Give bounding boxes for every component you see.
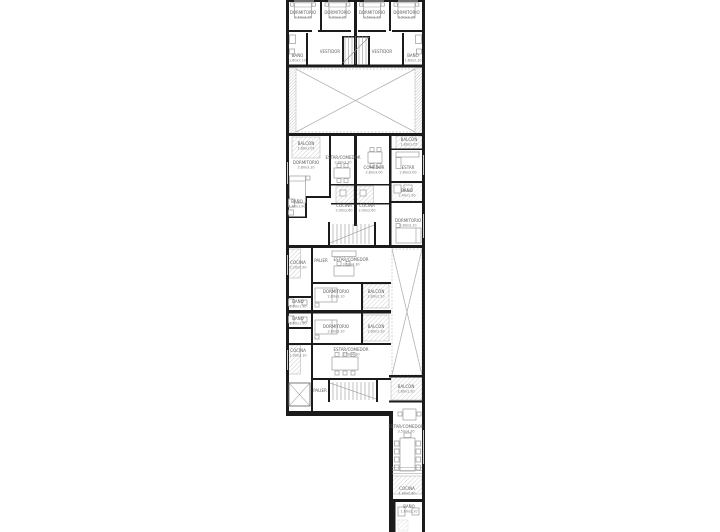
room-label-wing-estar-comedor: ESTAR/COMEDOR [389, 424, 424, 429]
room-dims-u2-bano: 1.60x1.90 [289, 305, 306, 309]
room-label-wing-bano: BAÑO [403, 504, 415, 509]
room-label-u2-balcon: BALCÓN [368, 289, 385, 294]
room-dims-u3-bano: 1.60x1.90 [289, 322, 306, 326]
stairs-unit1 [330, 224, 374, 244]
room-dims-u2-cocina: 2.20x2.90 [289, 266, 306, 270]
room-dims-u3-cocina: 1.90x3.10 [289, 354, 306, 358]
room-label-top-dorm-1: DORMITORIO [290, 10, 316, 15]
room-dims-u3-dorm: 2.80x3.10 [327, 330, 344, 334]
room-label-u3-balcon: BALCÓN [368, 324, 385, 329]
room-label-u2-dorm: DORMITORIO [323, 289, 349, 294]
room-dims-top-dorm-3: 2.50x3.25 [363, 16, 380, 20]
dining-table-icon-wing [395, 433, 421, 471]
room-label-top-vestidor-left: VESTIDOR [320, 49, 341, 54]
room-dims-top-bano-right: 1.60x2.10 [404, 59, 421, 63]
floor-plan-canvas: DORMITORIO 2.50x3.25 DORMITORIO 2.50x3.2… [0, 0, 720, 532]
room-label-wing-balcon: BALCÓN [398, 384, 415, 389]
shower-hatch-wing [398, 520, 408, 531]
room-label-u1-bano-right: BAÑO [401, 188, 413, 193]
room-dims-wing-bano: 1.60x2.10 [400, 510, 417, 514]
room-dims-wing-balcon: 2.80x1.20 [397, 390, 414, 394]
stairs-unit3 [330, 382, 376, 400]
room-label-u1-balcon-right: BALCÓN [401, 137, 418, 142]
room-label-top-bano-right: BAÑO [407, 53, 419, 58]
room-dims-wing-estar-comedor: 3.50x4.30 [397, 430, 414, 434]
room-label-u1-bano-left: BAÑO [291, 199, 303, 204]
room-dims-top-dorm-1: 2.50x3.25 [294, 16, 311, 20]
room-dims-u1-balcon-right: 1.80x1.05 [400, 143, 417, 147]
room-dims-u2-estar-comedor: 3.50x4.30 [342, 263, 359, 267]
room-label-wing-cocina: COCINA [399, 486, 415, 491]
room-label-u1-estar-comedor: ESTAR/COMEDOR [326, 155, 361, 160]
room-label-u3-dorm: DORMITORIO [323, 324, 349, 329]
room-dims-u1-cocina-left: 2.00x2.60 [335, 209, 352, 213]
room-label-top-vestidor-right: VESTIDOR [372, 49, 393, 54]
elevator-icon [289, 383, 310, 406]
room-dims-u3-balcon: 2.80x1.20 [367, 330, 384, 334]
room-label-u3-estar-comedor: ESTAR/COMEDOR [334, 347, 369, 352]
room-label-u3-palier: PALIER [313, 388, 327, 393]
toilet-icon-top-right [416, 35, 422, 54]
room-label-u2-cocina: COCINA [290, 260, 306, 265]
room-label-u3-bano: BAÑO [292, 316, 304, 321]
room-label-u1-balcon-left: BALCÓN [298, 141, 315, 146]
room-label-top-dorm-4: DORMITORIO [393, 10, 419, 15]
floor-plan-svg: DORMITORIO 2.50x3.25 DORMITORIO 2.50x3.2… [0, 0, 720, 532]
room-label-u1-estar: ESTAR [402, 165, 415, 170]
table-icon-u1-estar [334, 164, 350, 183]
sofa-icon-u2 [332, 251, 356, 257]
room-label-u1-dorm-left: DORMITORIO [293, 160, 319, 165]
room-label-top-dorm-3: DORMITORIO [359, 10, 385, 15]
void-edge-hatch-left [289, 68, 296, 133]
room-dims-top-bano-left: 1.60x2.10 [289, 59, 306, 63]
void-edge-hatch-right [415, 68, 422, 133]
room-dims-u3-estar-comedor: 3.50x4.30 [342, 353, 359, 357]
room-dims-u2-balcon: 2.80x1.20 [367, 295, 384, 299]
room-dims-u1-bano-left: 1.60x1.90 [288, 205, 305, 209]
room-dims-wing-cocina: 1.90x2.80 [398, 492, 415, 496]
room-dims-u1-balcon-left: 1.80x1.05 [297, 147, 314, 151]
room-label-u1-dorm-right: DORMITORIO [395, 218, 421, 223]
room-label-u1-cocina-right: COCINA [359, 203, 375, 208]
room-dims-top-dorm-2: 2.50x3.25 [329, 16, 346, 20]
room-label-top-bano-left: BAÑO [292, 53, 304, 58]
room-label-u1-comedor: COMEDOR [364, 165, 385, 170]
room-label-top-dorm-2: DORMITORIO [324, 10, 350, 15]
table-icon-wing-small [398, 409, 421, 420]
room-label-u2-estar-comedor: ESTAR/COMEDOR [334, 257, 369, 262]
room-label-u2-bano: BAÑO [292, 299, 304, 304]
room-dims-u1-cocina-right: 2.00x2.60 [358, 209, 375, 213]
room-dims-u1-dorm-right: 2.80x3.10 [399, 224, 416, 228]
room-dims-u1-comedor: 2.80x3.00 [365, 171, 382, 175]
room-label-u2-palier: PALIER [314, 258, 328, 263]
room-dims-u1-estar-comedor: 2.80x3.30 [334, 161, 351, 165]
room-dims-u1-dorm-left: 2.80x3.10 [297, 166, 314, 170]
room-dims-u2-dorm: 2.80x3.10 [327, 295, 344, 299]
room-label-u3-cocina: COCINA [290, 348, 306, 353]
room-dims-u1-estar: 2.80x3.00 [399, 171, 416, 175]
room-dims-u1-bano-right: 2.40x1.90 [398, 194, 415, 198]
toilet-icon-top-left [290, 35, 296, 54]
room-label-u1-cocina-left: COCINA [336, 203, 352, 208]
room-dims-top-dorm-4: 2.50x3.25 [398, 16, 415, 20]
